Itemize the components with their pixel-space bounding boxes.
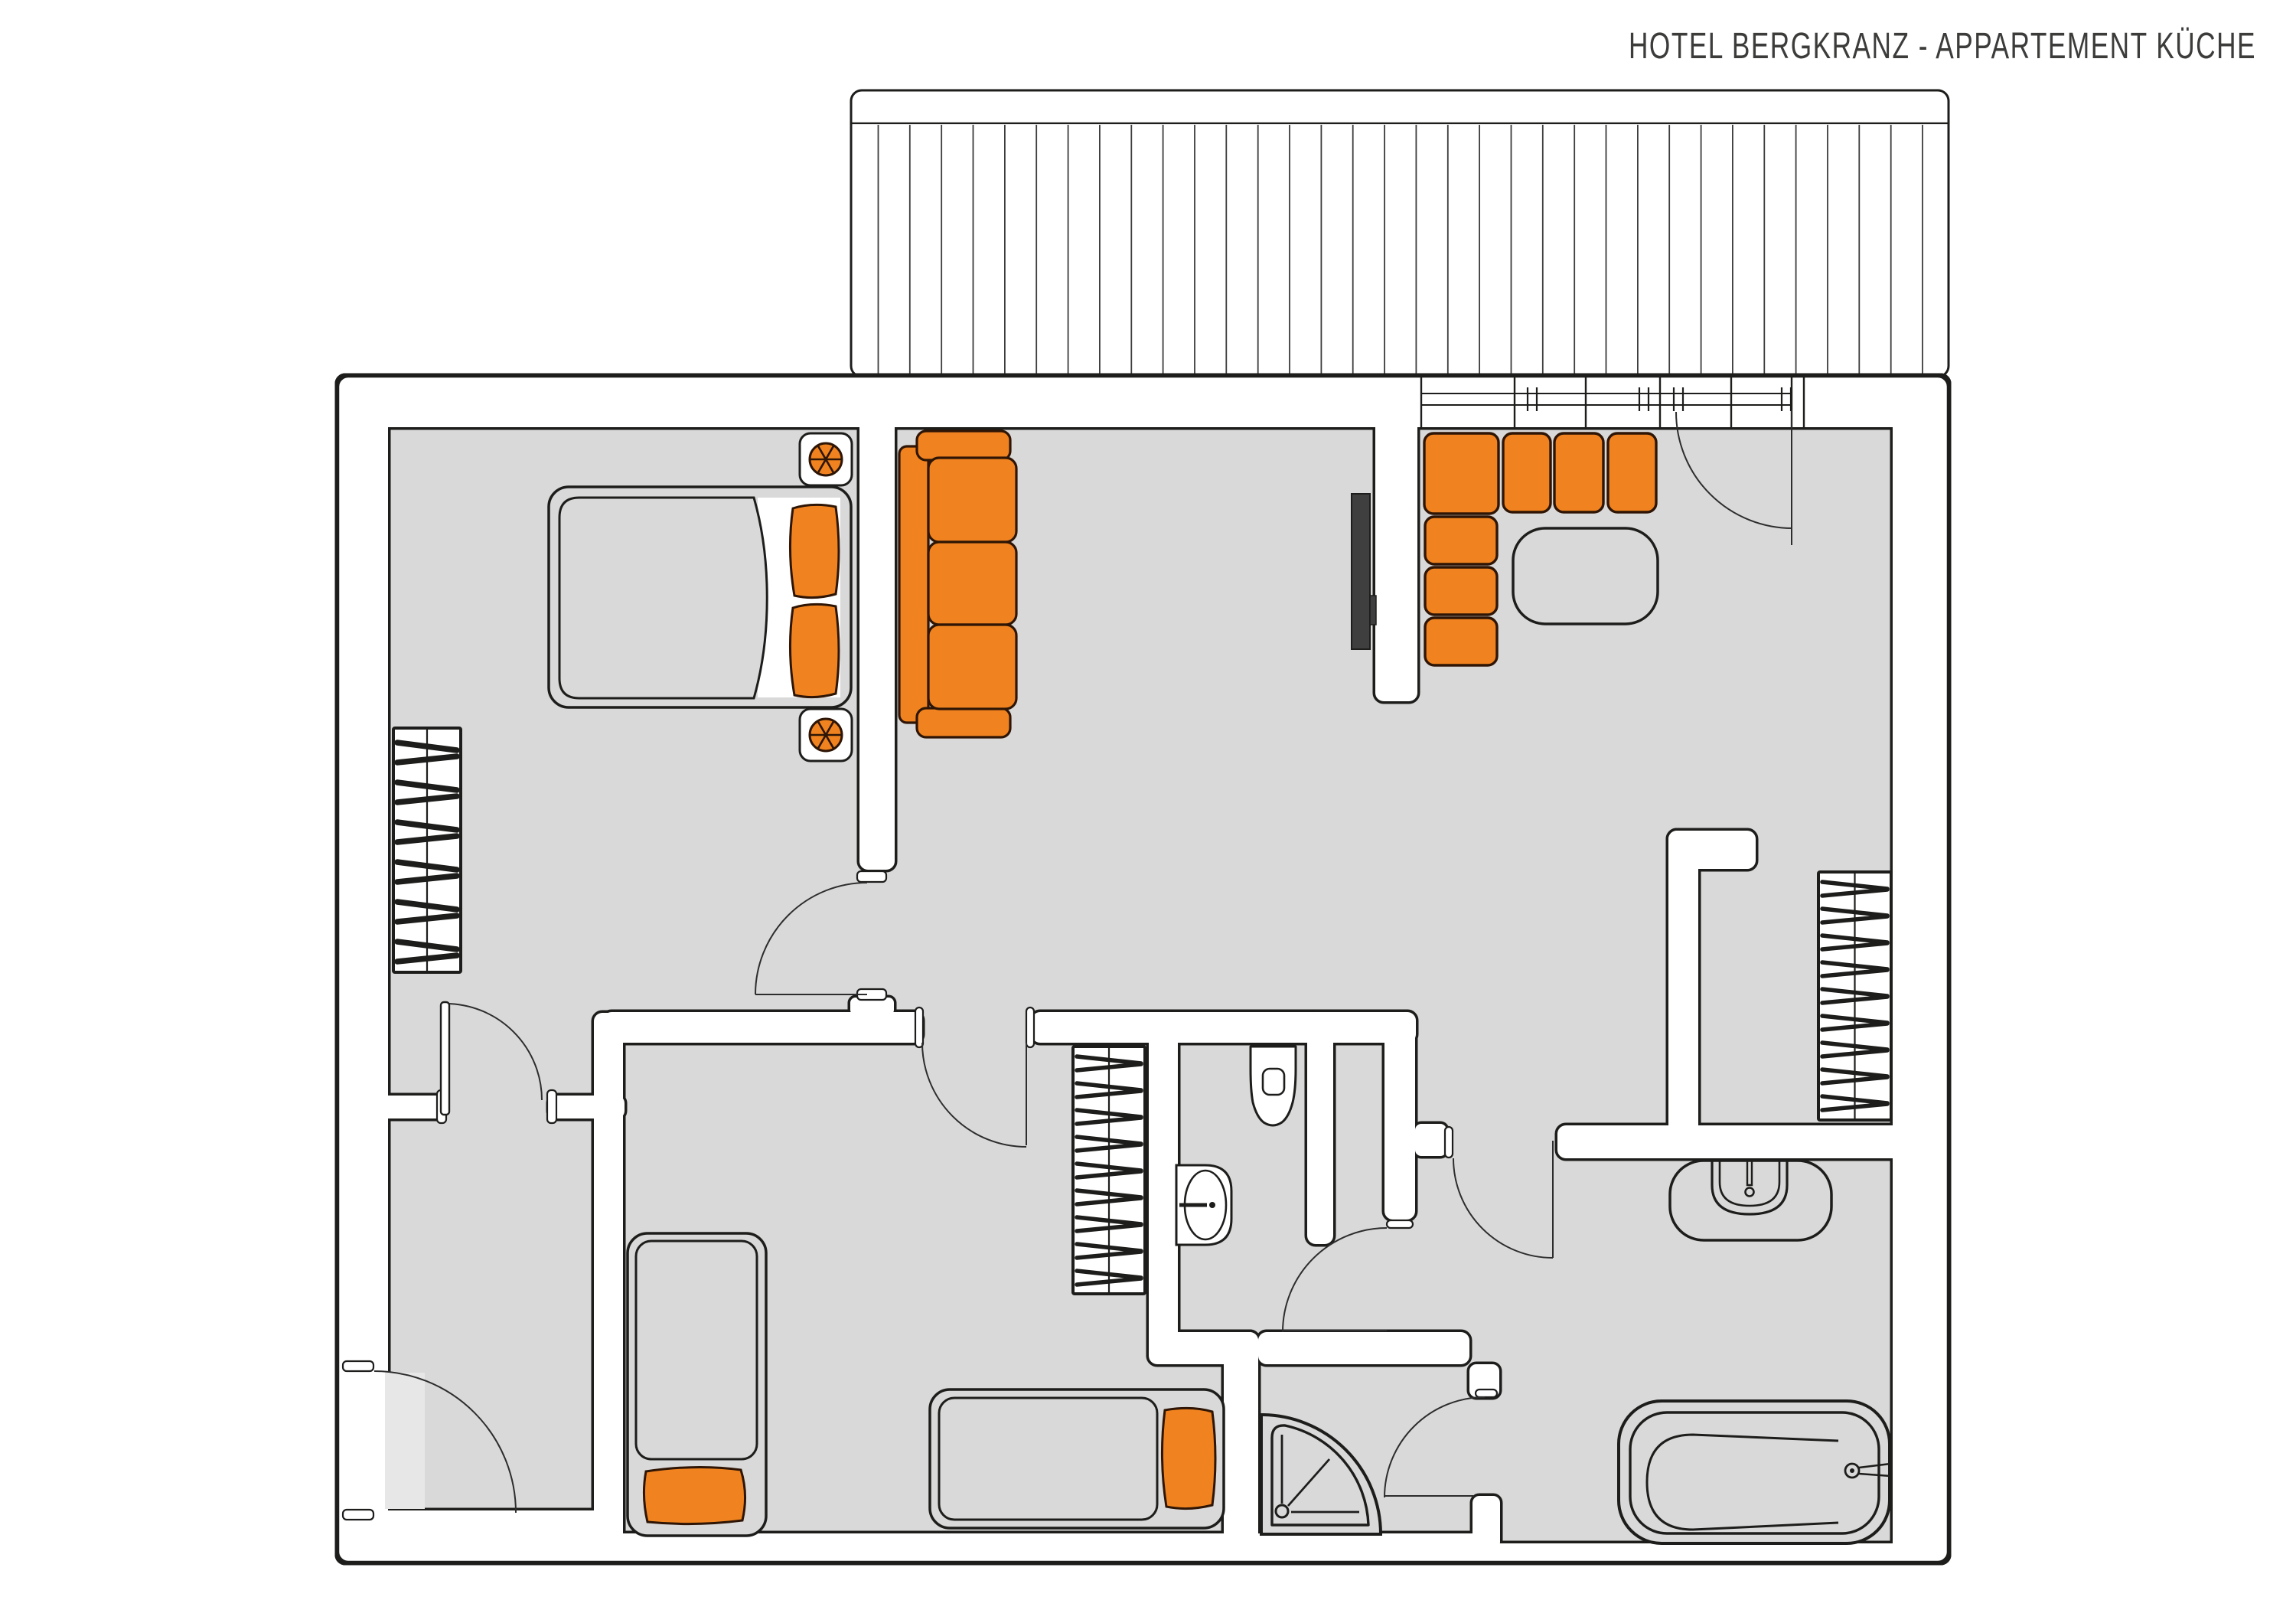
svg-text:HOTEL BERGKRANZ - APPARTEMENT: HOTEL BERGKRANZ - APPARTEMENT KÜCHE bbox=[1629, 26, 2256, 67]
